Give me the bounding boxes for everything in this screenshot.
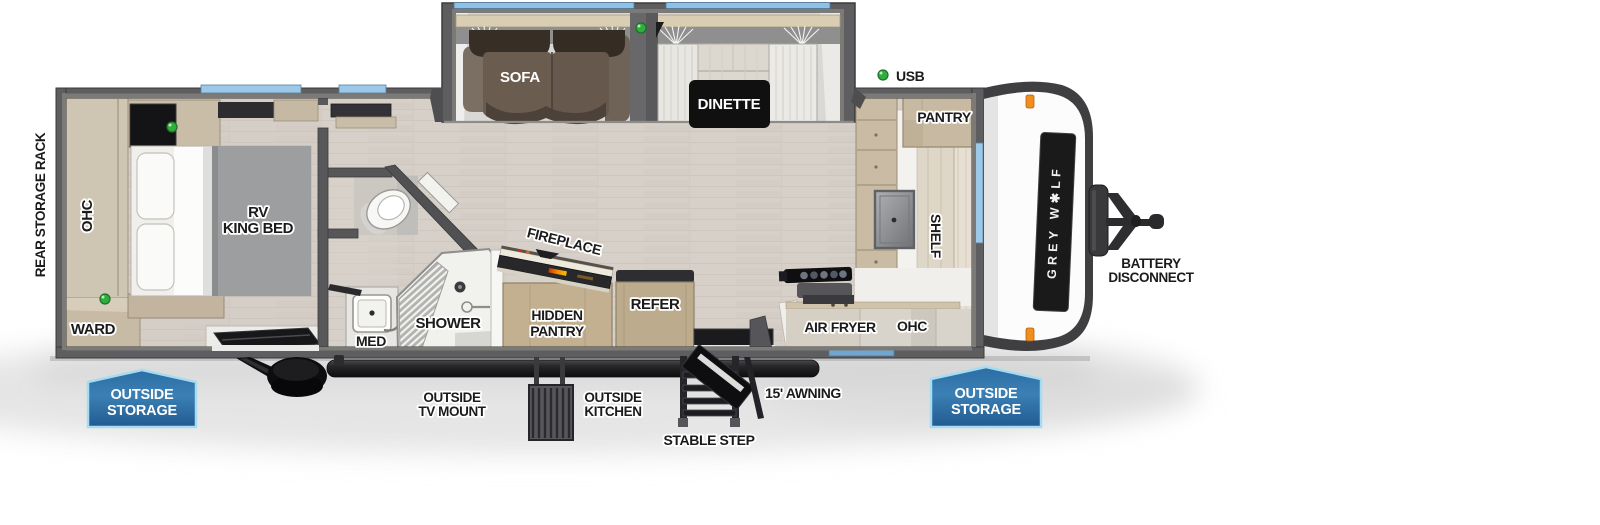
svg-text:STABLE STEP: STABLE STEP [663, 432, 754, 448]
svg-text:REAR STORAGE RACK: REAR STORAGE RACK [33, 132, 48, 277]
svg-text:DISCONNECT: DISCONNECT [1108, 270, 1194, 285]
svg-text:OUTSIDE: OUTSIDE [110, 387, 174, 403]
svg-text:PANTRY: PANTRY [530, 323, 585, 339]
svg-text:PANTRY: PANTRY [917, 109, 972, 125]
svg-text:OUTSIDE: OUTSIDE [423, 390, 481, 405]
svg-text:STORAGE: STORAGE [107, 403, 178, 419]
svg-text:SHELF: SHELF [928, 214, 944, 259]
svg-text:KITCHEN: KITCHEN [584, 404, 641, 419]
svg-text:STORAGE: STORAGE [951, 402, 1022, 418]
svg-text:KING BED: KING BED [223, 220, 294, 237]
svg-text:OUTSIDE: OUTSIDE [584, 390, 642, 405]
svg-text:BATTERY: BATTERY [1121, 256, 1181, 271]
svg-text:15' AWNING: 15' AWNING [765, 385, 841, 401]
svg-text:WARD: WARD [71, 321, 116, 338]
svg-text:OHC: OHC [897, 318, 927, 334]
svg-text:TV MOUNT: TV MOUNT [418, 404, 486, 419]
svg-text:REFER: REFER [631, 296, 680, 313]
svg-text:SHOWER: SHOWER [415, 315, 481, 332]
svg-text:OUTSIDE: OUTSIDE [954, 386, 1018, 402]
svg-text:USB: USB [896, 68, 925, 84]
svg-text:HIDDEN: HIDDEN [531, 307, 583, 323]
svg-text:MED: MED [356, 333, 386, 349]
svg-text:OHC: OHC [79, 199, 96, 232]
svg-text:AIR FRYER: AIR FRYER [804, 319, 876, 335]
svg-text:RV: RV [248, 204, 268, 221]
svg-text:DINETTE: DINETTE [698, 96, 761, 113]
svg-text:SOFA: SOFA [500, 69, 540, 86]
